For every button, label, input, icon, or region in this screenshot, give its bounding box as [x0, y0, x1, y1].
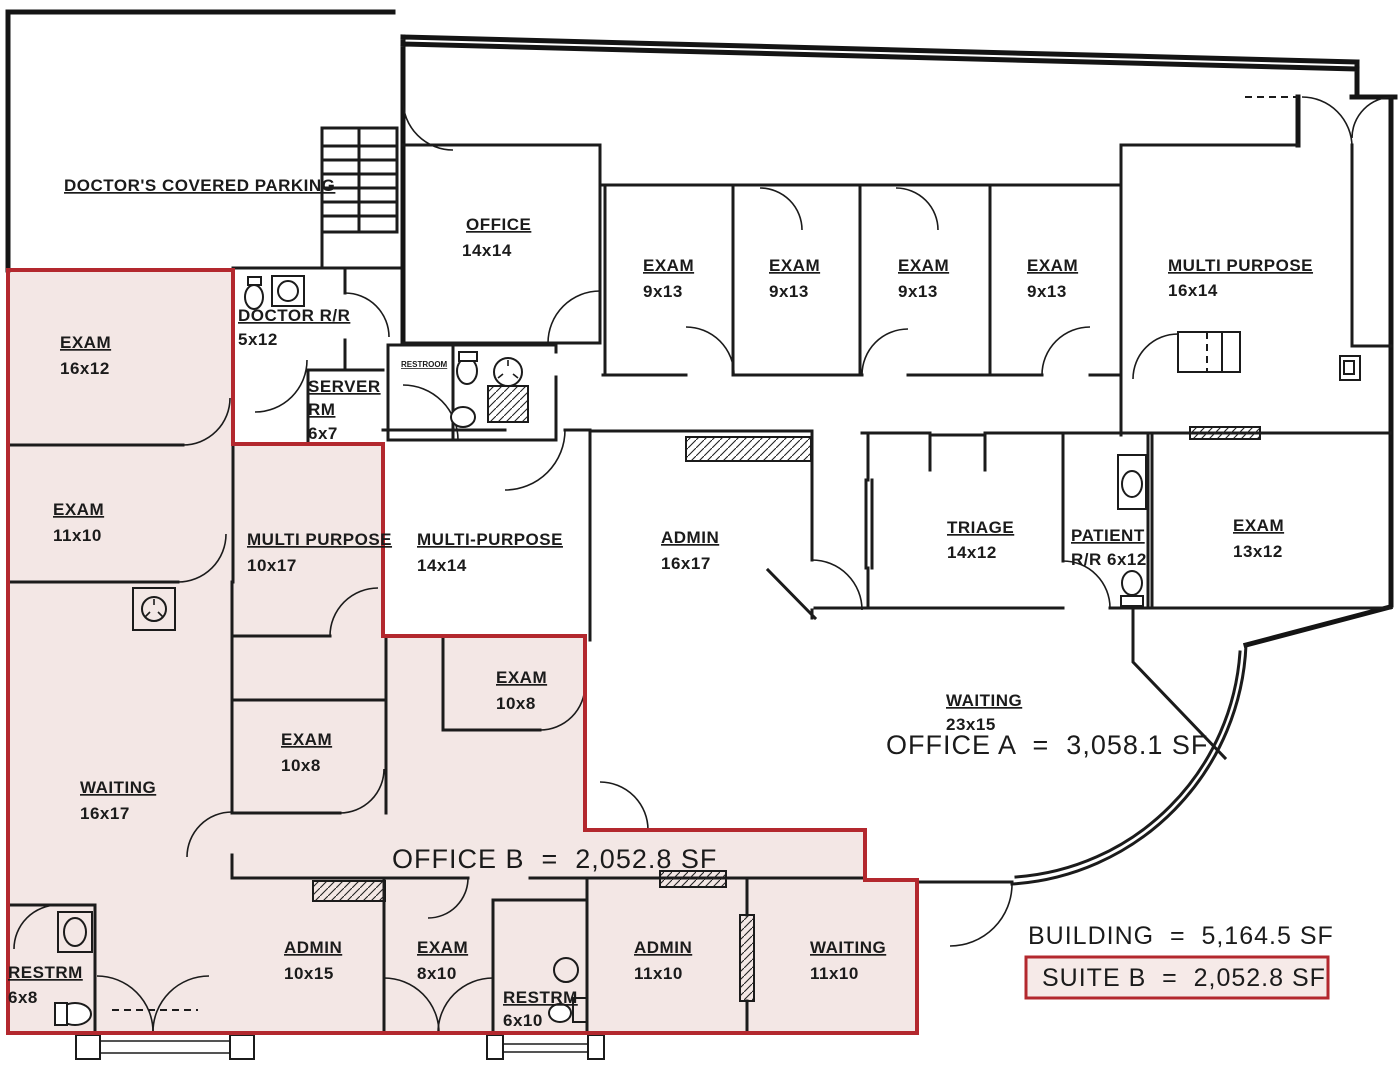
room-size-multi-purpose-16x14: 16x14: [1168, 281, 1218, 300]
room-size-exam-11x10: 11x10: [53, 526, 102, 545]
room-size-restrm-6x10: 6x10: [503, 1011, 543, 1030]
room-name-server-rm: SERVER: [308, 377, 381, 396]
room-size-exam-9x13-a: 9x13: [643, 282, 683, 301]
room-size-exam-13x12: 13x12: [1233, 542, 1283, 561]
room-name-waiting-16x17: WAITING: [80, 778, 156, 797]
stairs: [233, 128, 403, 268]
room-name-exam-9x13-a: EXAM: [643, 256, 694, 275]
room-size-exam-9x13-b: 9x13: [769, 282, 809, 301]
room-size-waiting-11x10: 11x10: [810, 964, 859, 983]
room-size-doctor-rr: 5x12: [238, 330, 278, 349]
interior-walls-top: [308, 145, 1391, 444]
room-name-exam-16x12: EXAM: [60, 333, 111, 352]
room-size-patient-rr: R/R 6x12: [1071, 550, 1147, 569]
room-name-multi-purpose-16x14: MULTI PURPOSE: [1168, 256, 1313, 275]
room-size-exam-9x13-d: 9x13: [1027, 282, 1067, 301]
room-size-admin-16x17: 16x17: [661, 554, 711, 573]
floor-plan-svg: DOCTOR'S COVERED PARKING OFFICE 14x14 EX…: [0, 0, 1400, 1067]
room-name-waiting-11x10: WAITING: [810, 938, 886, 957]
room-size-admin-10x15: 10x15: [284, 964, 334, 983]
annotation-office-a-area: OFFICE A = 3,058.1 SF: [886, 730, 1208, 760]
room-name-admin-11x10: ADMIN: [634, 938, 692, 957]
room-name-exam-11x10: EXAM: [53, 500, 104, 519]
room-name-office-14x14: OFFICE: [466, 215, 531, 234]
room-name-admin-10x15: ADMIN: [284, 938, 342, 957]
room-name-exam-9x13-d: EXAM: [1027, 256, 1078, 275]
room-name-patient-rr: PATIENT: [1071, 526, 1145, 545]
floor-plan: DOCTOR'S COVERED PARKING OFFICE 14x14 EX…: [0, 0, 1400, 1067]
room-size-restrm-6x8: 6x8: [8, 988, 38, 1007]
room-name-admin-16x17: ADMIN: [661, 528, 719, 547]
room-size-multi-purpose-10x17: 10x17: [247, 556, 297, 575]
room-name-exam-9x13-c: EXAM: [898, 256, 949, 275]
room-size-triage: 14x12: [947, 543, 997, 562]
room-name-exam-10x8-a: EXAM: [496, 668, 547, 687]
curved-entry-wall: [917, 645, 1246, 884]
label-parking: DOCTOR'S COVERED PARKING: [64, 176, 335, 195]
room-name-exam-8x10: EXAM: [417, 938, 468, 957]
room-name-triage: TRIAGE: [947, 518, 1014, 537]
room-name-exam-9x13-b: EXAM: [769, 256, 820, 275]
annotation-suite-b-area: SUITE B = 2,052.8 SF: [1042, 964, 1326, 992]
room-name-restrm-6x8: RESTRM: [8, 963, 83, 982]
label-restroom-small: RESTROOM: [401, 360, 448, 369]
room-size-exam-8x10: 8x10: [417, 964, 457, 983]
room-size-exam-10x8-a: 10x8: [496, 694, 536, 713]
room-size-multi-purpose-14x14: 14x14: [417, 556, 467, 575]
room-name-restrm-6x10: RESTRM: [503, 988, 578, 1007]
room-name-exam-13x12: EXAM: [1233, 516, 1284, 535]
room-size-office-14x14: 14x14: [462, 241, 512, 260]
room-size-exam-9x13-c: 9x13: [898, 282, 938, 301]
room-name-exam-10x8-b: EXAM: [281, 730, 332, 749]
room-size-admin-11x10: 11x10: [634, 964, 683, 983]
room-size-exam-10x8-b: 10x8: [281, 756, 321, 775]
room-size-exam-16x12: 16x12: [60, 359, 110, 378]
room-size-waiting-16x17: 16x17: [80, 804, 130, 823]
room-name-multi-purpose-14x14: MULTI-PURPOSE: [417, 530, 563, 549]
room-name-multi-purpose-10x17: MULTI PURPOSE: [247, 530, 392, 549]
annotation-office-b-area: OFFICE B = 2,052.8 SF: [392, 844, 717, 874]
annotation-building-area: BUILDING = 5,164.5 SF: [1028, 922, 1334, 950]
room-size-server-rm: 6x7: [308, 424, 338, 443]
suite-b-region: [8, 270, 917, 1033]
room-name-waiting-23x15: WAITING: [946, 691, 1022, 710]
room-name-doctor-rr: DOCTOR R/R: [238, 306, 350, 325]
room-name2-server-rm: RM: [308, 400, 335, 419]
